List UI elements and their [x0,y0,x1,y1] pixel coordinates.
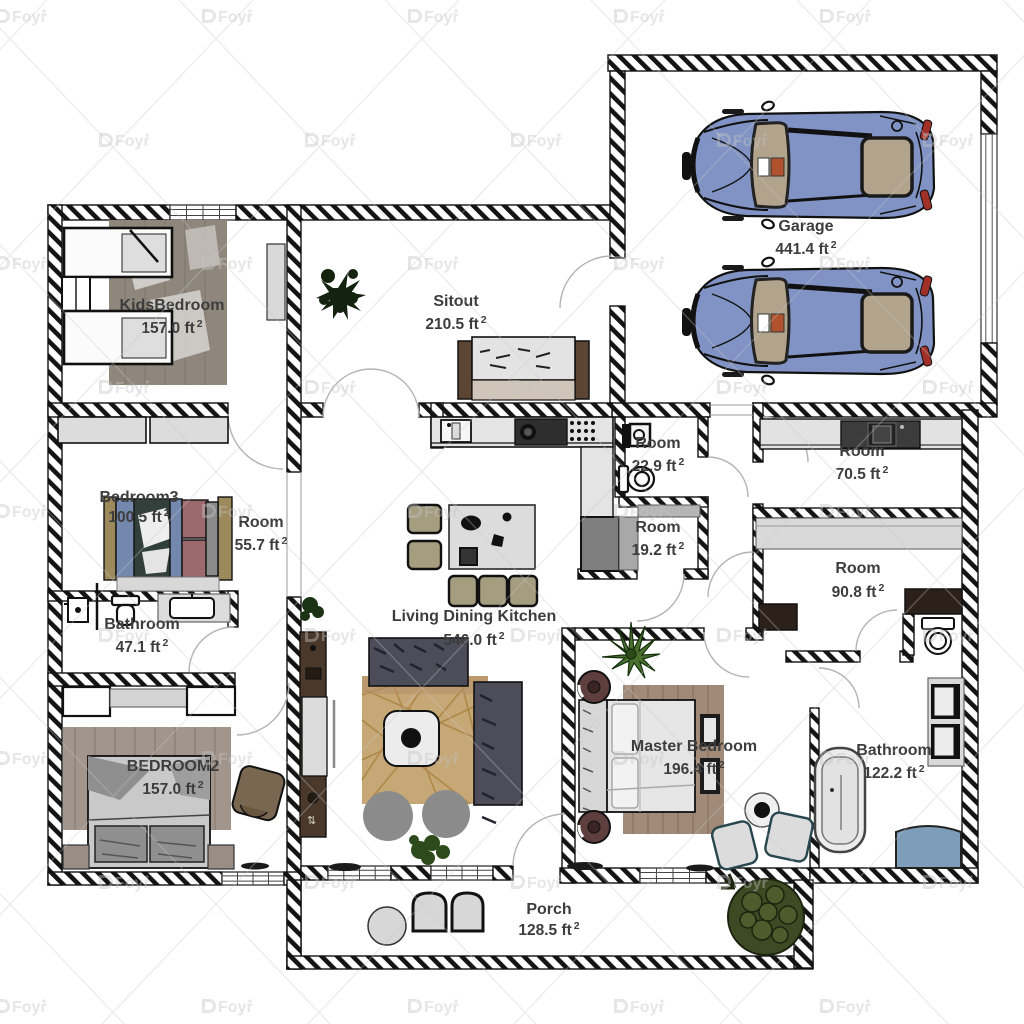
svg-text:Room: Room [835,560,880,577]
svg-text:Foyr: Foyr [836,9,871,26]
svg-text:Foyr: Foyr [527,628,562,645]
svg-text:Foyr: Foyr [115,380,150,397]
svg-text:Foyr: Foyr [321,628,356,645]
svg-text:122.2 ft2: 122.2 ft2 [863,763,924,782]
svg-text:Foyr: Foyr [218,751,253,768]
svg-text:Foyr: Foyr [115,133,150,150]
svg-text:Foyr: Foyr [630,256,665,273]
svg-text:157.0 ft2: 157.0 ft2 [142,779,203,798]
svg-text:Foyr: Foyr [630,504,665,521]
svg-text:Foyr: Foyr [321,133,356,150]
svg-text:Foyr: Foyr [424,999,459,1016]
svg-text:210.5 ft2: 210.5 ft2 [425,314,486,333]
svg-text:Foyr: Foyr [218,9,253,26]
svg-text:Foyr: Foyr [12,999,47,1016]
svg-text:Foyr: Foyr [218,256,253,273]
svg-text:Foyr: Foyr [836,504,871,521]
svg-text:KidsBedroom: KidsBedroom [120,297,225,314]
svg-text:Foyr: Foyr [939,628,974,645]
svg-text:Room: Room [635,519,680,536]
svg-text:Foyr: Foyr [424,9,459,26]
svg-text:Foyr: Foyr [321,875,356,892]
svg-text:Foyr: Foyr [218,504,253,521]
svg-text:Living Dining Kitchen: Living Dining Kitchen [392,608,556,625]
svg-text:100.5 ft2: 100.5 ft2 [108,507,169,526]
svg-text:196.4 ft2: 196.4 ft2 [663,759,724,778]
svg-text:Foyr: Foyr [939,133,974,150]
svg-text:Foyr: Foyr [424,751,459,768]
svg-text:Room: Room [635,435,680,452]
svg-text:Foyr: Foyr [527,133,562,150]
svg-text:Foyr: Foyr [630,751,665,768]
svg-text:Foyr: Foyr [733,133,768,150]
svg-text:Foyr: Foyr [424,256,459,273]
svg-text:Foyr: Foyr [527,875,562,892]
svg-text:Foyr: Foyr [733,628,768,645]
svg-text:Foyr: Foyr [321,380,356,397]
svg-text:Foyr: Foyr [12,9,47,26]
svg-text:Foyr: Foyr [115,875,150,892]
svg-text:Foyr: Foyr [424,504,459,521]
svg-text:Bedroom3: Bedroom3 [99,489,178,506]
svg-text:Foyr: Foyr [12,256,47,273]
svg-text:Foyr: Foyr [836,999,871,1016]
svg-text:Porch: Porch [526,901,571,918]
svg-text:Foyr: Foyr [733,875,768,892]
svg-text:157.0 ft2: 157.0 ft2 [141,318,202,337]
svg-text:⇅: ⇅ [307,815,316,827]
svg-text:Foyr: Foyr [527,380,562,397]
svg-text:Foyr: Foyr [12,751,47,768]
svg-text:Room: Room [839,443,884,460]
svg-text:Foyr: Foyr [939,875,974,892]
svg-text:Foyr: Foyr [630,999,665,1016]
svg-text:Foyr: Foyr [939,380,974,397]
svg-text:Foyr: Foyr [218,999,253,1016]
svg-text:128.5 ft2: 128.5 ft2 [518,920,579,939]
svg-text:Foyr: Foyr [836,751,871,768]
svg-text:Foyr: Foyr [12,504,47,521]
svg-text:Foyr: Foyr [630,9,665,26]
svg-text:Foyr: Foyr [836,256,871,273]
svg-text:Foyr: Foyr [733,380,768,397]
svg-text:Foyr: Foyr [115,628,150,645]
